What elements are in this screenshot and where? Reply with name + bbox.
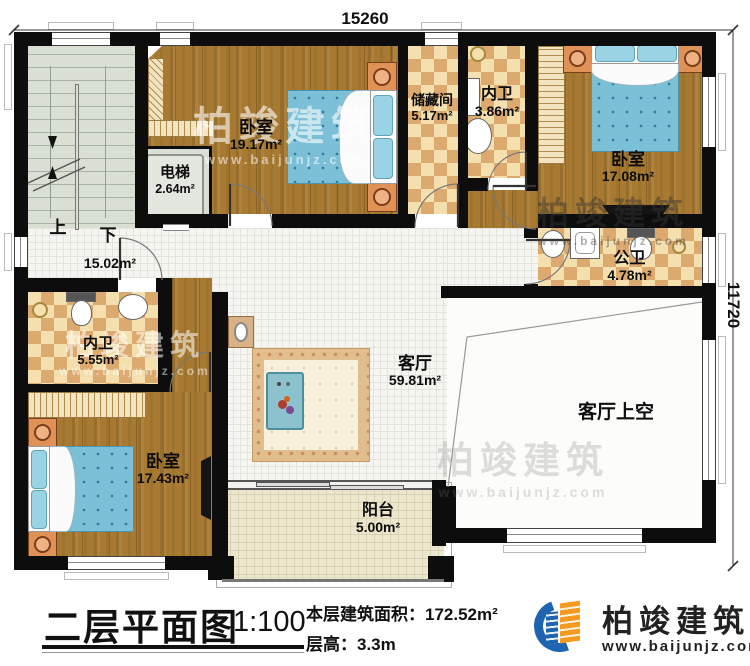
label-bedroom1: 卧室 19.17m²	[196, 118, 316, 153]
room-name: 储藏间	[398, 93, 466, 109]
floor-area-value: 172.52m²	[425, 605, 498, 624]
label-elevator: 电梯 2.64m²	[141, 165, 209, 196]
room-area: 17.43m²	[103, 471, 223, 487]
plan-scale: 1:100	[233, 606, 306, 639]
room-name: 内卫	[56, 336, 140, 353]
label-stairs-down: 下	[96, 226, 120, 245]
label-bath1: 内卫 3.86m²	[461, 86, 533, 120]
brand-name: 柏竣建筑	[602, 596, 750, 641]
label-hall-area: 15.02m²	[70, 256, 150, 272]
brand-logo-icon	[532, 596, 594, 658]
label-bedroom3: 卧室 17.43m²	[103, 452, 223, 487]
room-name: 阳台	[318, 502, 438, 520]
floor-area-label: 本层建筑面积：	[306, 605, 425, 624]
label-living: 客厅 59.81m²	[355, 354, 475, 389]
dimension-right: 11720	[723, 275, 743, 335]
floor-plan-page: 15260 11720 卧室 19.17m² 储藏间 5.17m² 内卫 3.8…	[0, 0, 750, 666]
floor-area-line: 本层建筑面积：172.52m²	[306, 600, 498, 625]
brand-website: www.baijunjz.com	[602, 638, 750, 655]
label-storage: 储藏间 5.17m²	[398, 93, 466, 123]
label-bedroom2: 卧室 17.08m²	[568, 150, 688, 185]
room-area: 2.64m²	[141, 182, 209, 196]
room-area: 4.78m²	[572, 268, 687, 284]
label-stairs-up: 上	[46, 218, 70, 237]
title-underline	[42, 645, 304, 649]
room-name: 客厅	[355, 354, 475, 373]
room-area: 3.86m²	[461, 104, 533, 120]
room-name: 内卫	[461, 86, 533, 104]
logo-building-orange	[560, 601, 580, 644]
label-balcony: 阳台 5.00m²	[318, 502, 438, 536]
room-name: 卧室	[103, 452, 223, 471]
logo-building-blue	[546, 611, 558, 644]
room-name: 电梯	[141, 165, 209, 182]
room-area: 19.17m²	[196, 137, 316, 153]
room-area: 5.00m²	[318, 520, 438, 536]
room-area: 17.08m²	[568, 169, 688, 185]
room-name: 卧室	[196, 118, 316, 137]
room-area: 59.81m²	[355, 373, 475, 389]
floor-height-label: 层高：	[306, 635, 357, 654]
label-living-void: 客厅上空	[536, 402, 696, 423]
room-name: 公卫	[572, 250, 687, 268]
floor-height-line: 层高：3.3m	[306, 630, 396, 655]
dimension-top: 15260	[320, 9, 410, 29]
room-name: 卧室	[568, 150, 688, 169]
room-area: 5.17m²	[398, 109, 466, 124]
title-underline-thin	[42, 652, 304, 653]
label-bath2: 内卫 5.55m²	[56, 336, 140, 367]
plan-title: 二层平面图	[44, 597, 239, 651]
floor-height-value: 3.3m	[357, 635, 396, 654]
label-public-bath: 公卫 4.78m²	[572, 250, 687, 284]
room-area: 5.55m²	[56, 353, 140, 368]
